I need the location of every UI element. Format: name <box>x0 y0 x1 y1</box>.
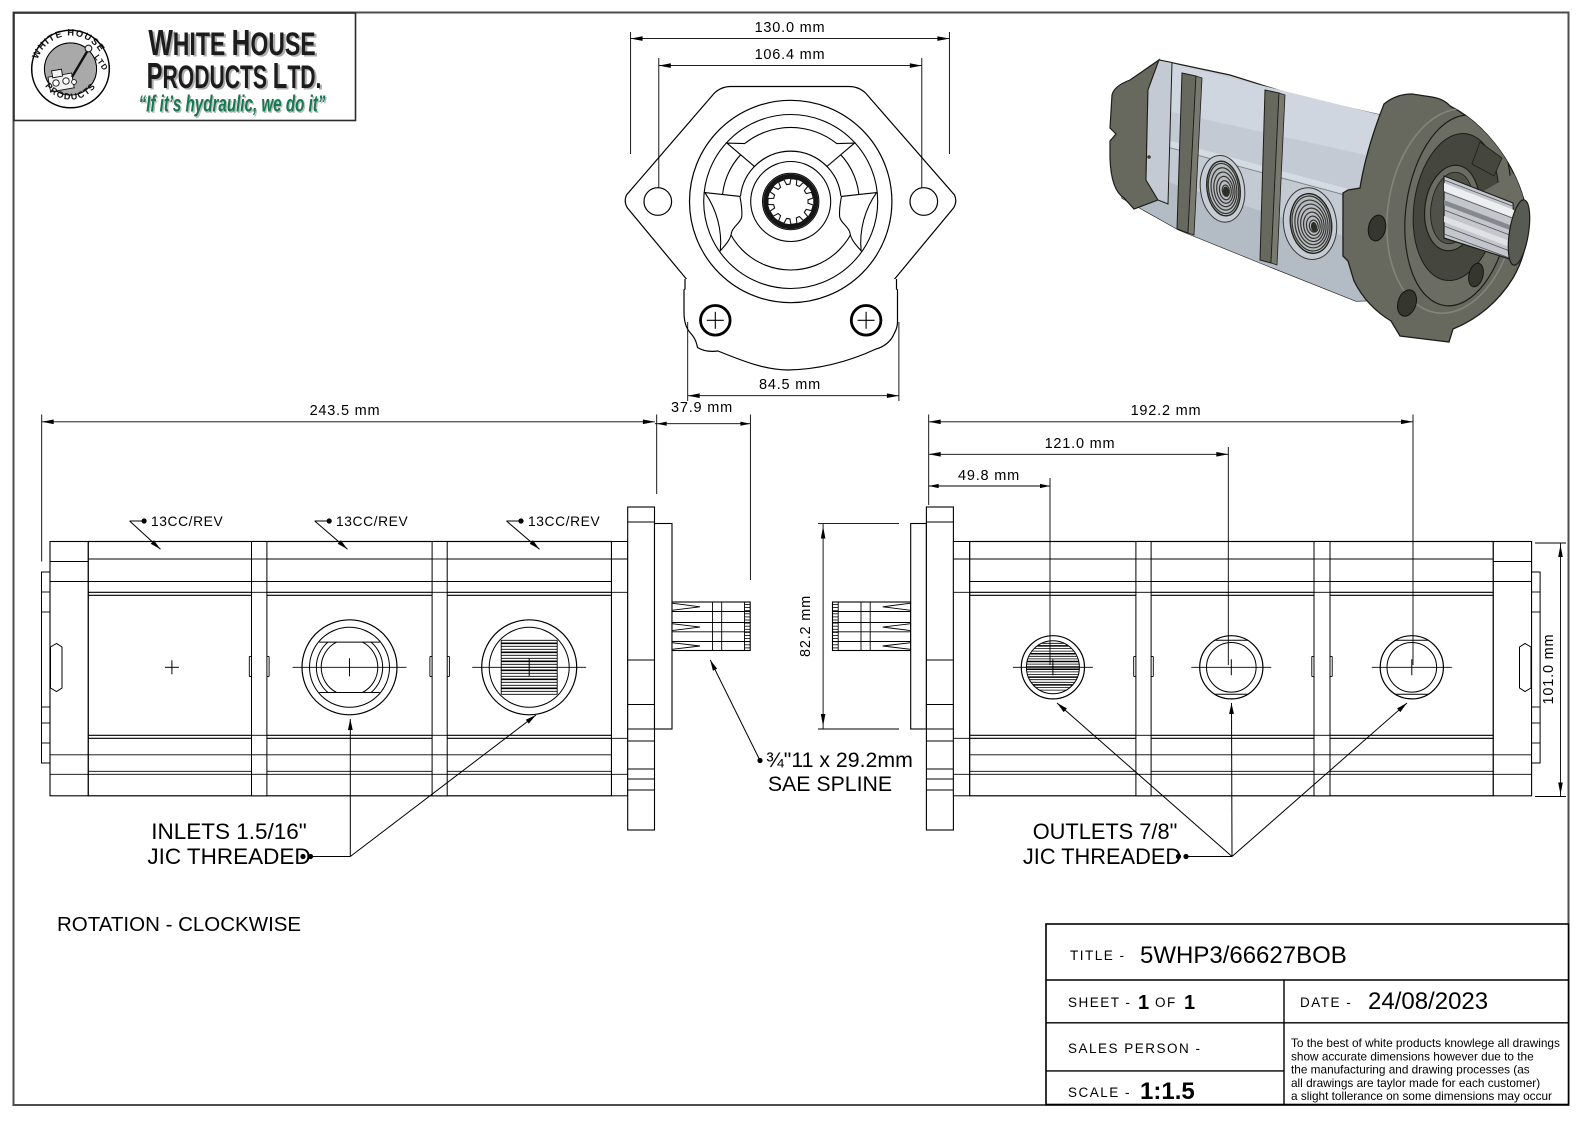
svg-text:24/08/2023: 24/08/2023 <box>1368 988 1488 1015</box>
svg-text:¾"11 x 29.2mm: ¾"11 x 29.2mm <box>766 748 913 772</box>
svg-text:INLETS 1.5/16": INLETS 1.5/16" <box>151 819 307 844</box>
svg-text:“If it’s hydraulic, we do it”: “If it’s hydraulic, we do it” <box>139 91 326 117</box>
svg-text:the manufacturing and drawing: the manufacturing and drawing processes … <box>1291 1063 1530 1077</box>
svg-text:show accurate dimensions howev: show accurate dimensions however due to … <box>1291 1049 1534 1063</box>
svg-text:JIC THREADED: JIC THREADED <box>147 844 310 869</box>
svg-text:WHITE HOUSE: WHITE HOUSE <box>148 23 315 63</box>
svg-text:5WHP3/66627BOB: 5WHP3/66627BOB <box>1140 942 1347 969</box>
svg-text:OF: OF <box>1155 995 1177 1010</box>
svg-text:ROTATION - CLOCKWISE: ROTATION - CLOCKWISE <box>57 913 301 936</box>
svg-text:1: 1 <box>1184 992 1195 1014</box>
svg-text:SALES PERSON -: SALES PERSON - <box>1068 1041 1202 1056</box>
svg-text:49.8 mm: 49.8 mm <box>958 468 1020 484</box>
svg-text:a slight tollerance on some di: a slight tollerance on some dimensions m… <box>1291 1089 1552 1103</box>
svg-text:To the best of white products: To the best of white products knowlege a… <box>1291 1036 1560 1050</box>
svg-text:SAE SPLINE: SAE SPLINE <box>768 772 892 796</box>
svg-text:SCALE -: SCALE - <box>1068 1085 1131 1100</box>
svg-text:84.5 mm: 84.5 mm <box>759 377 821 393</box>
svg-text:121.0 mm: 121.0 mm <box>1045 436 1116 452</box>
svg-text:13CC/REV: 13CC/REV <box>151 514 223 529</box>
svg-text:82.2 mm: 82.2 mm <box>798 595 814 657</box>
svg-text:37.9 mm: 37.9 mm <box>671 400 733 416</box>
svg-text:OUTLETS 7/8": OUTLETS 7/8" <box>1033 819 1178 844</box>
svg-text:all drawings are taylor made f: all drawings are taylor made for each cu… <box>1291 1076 1540 1090</box>
svg-text:106.4 mm: 106.4 mm <box>755 47 826 63</box>
svg-text:1:1.5: 1:1.5 <box>1140 1078 1195 1105</box>
svg-text:JIC THREADED: JIC THREADED <box>1023 844 1181 869</box>
svg-text:DATE -: DATE - <box>1300 995 1352 1010</box>
svg-text:130.0 mm: 130.0 mm <box>755 20 826 36</box>
svg-text:243.5 mm: 243.5 mm <box>310 403 381 419</box>
svg-text:TITLE -: TITLE - <box>1070 948 1126 963</box>
svg-text:13CC/REV: 13CC/REV <box>528 514 600 529</box>
svg-text:192.2 mm: 192.2 mm <box>1131 403 1202 419</box>
svg-text:1: 1 <box>1138 992 1149 1014</box>
svg-text:101.0 mm: 101.0 mm <box>1541 634 1557 705</box>
svg-text:SHEET -: SHEET - <box>1068 995 1132 1010</box>
svg-text:PRODUCTS LTD.: PRODUCTS LTD. <box>147 56 322 96</box>
svg-text:13CC/REV: 13CC/REV <box>336 514 408 529</box>
